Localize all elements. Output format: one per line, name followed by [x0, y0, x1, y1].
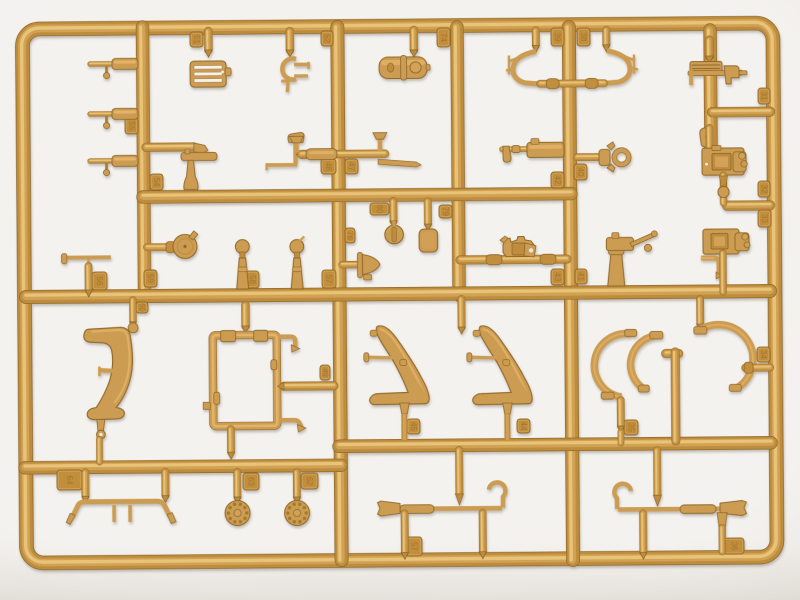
svg-text:79: 79: [441, 207, 450, 217]
svg-text:55: 55: [127, 122, 136, 132]
svg-text:58: 58: [248, 275, 257, 285]
svg-text:57: 57: [324, 275, 333, 285]
svg-text:62: 62: [305, 477, 314, 487]
svg-text:33: 33: [760, 214, 769, 224]
svg-text:32: 32: [759, 185, 768, 195]
svg-text:35: 35: [626, 423, 635, 433]
svg-text:47: 47: [347, 162, 356, 172]
svg-text:59: 59: [146, 274, 155, 284]
svg-text:31: 31: [759, 92, 768, 102]
svg-text:76: 76: [345, 231, 354, 241]
svg-text:51: 51: [192, 35, 201, 45]
svg-text:39: 39: [553, 32, 562, 42]
svg-text:43: 43: [553, 273, 562, 283]
svg-text:80: 80: [375, 205, 384, 215]
svg-text:36: 36: [729, 542, 738, 552]
svg-text:57: 57: [409, 542, 418, 552]
svg-text:42: 42: [553, 176, 562, 186]
svg-text:45: 45: [409, 422, 418, 432]
svg-text:74: 74: [439, 33, 448, 43]
svg-text:44: 44: [519, 422, 528, 432]
svg-text:60: 60: [137, 303, 146, 313]
svg-text:49: 49: [320, 368, 329, 378]
svg-text:41: 41: [576, 272, 585, 282]
svg-text:48: 48: [324, 162, 333, 172]
svg-text:38: 38: [579, 32, 588, 42]
svg-text:64: 64: [65, 476, 74, 486]
svg-text:34: 34: [759, 350, 768, 360]
svg-text:63: 63: [246, 477, 255, 487]
svg-text:52: 52: [322, 34, 331, 44]
svg-text:56: 56: [95, 277, 104, 287]
svg-text:54: 54: [152, 178, 161, 188]
svg-text:40: 40: [576, 168, 585, 178]
